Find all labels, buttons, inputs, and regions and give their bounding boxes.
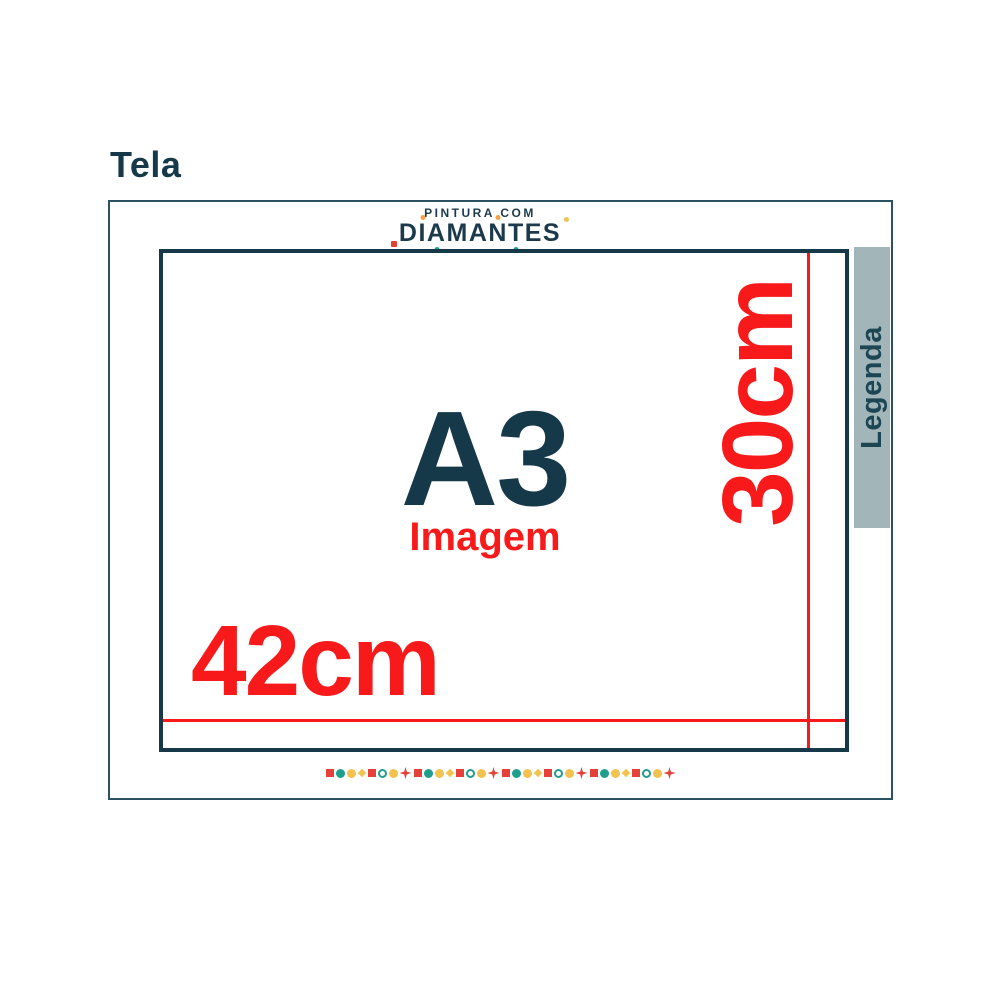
brand-letter: M bbox=[446, 219, 468, 248]
circle-teal-icon bbox=[424, 769, 433, 778]
square-red-icon bbox=[544, 769, 552, 777]
square-red-icon bbox=[502, 769, 510, 777]
circle-yellow-icon bbox=[347, 769, 356, 778]
star-red-icon bbox=[488, 767, 500, 779]
brand-logo: PINTURA COM DIAMANTES bbox=[110, 206, 850, 248]
circle-yellow-icon bbox=[611, 769, 620, 778]
legend-bar: Legenda bbox=[854, 247, 890, 528]
brand-letter: D bbox=[399, 219, 419, 248]
circle-yellow-icon bbox=[565, 769, 574, 778]
ring-teal-icon bbox=[466, 769, 475, 778]
brand-letter: A bbox=[427, 219, 447, 248]
circle-yellow-icon bbox=[477, 769, 486, 778]
ring-teal-icon bbox=[642, 769, 651, 778]
brand-letter: I bbox=[418, 219, 426, 248]
diamond-yellow-icon bbox=[445, 769, 453, 777]
canvas-height-label: 30cm bbox=[708, 279, 808, 527]
red-diamond-dot-icon bbox=[391, 241, 397, 247]
brand-letter: T bbox=[508, 219, 525, 248]
page-title: Tela bbox=[110, 144, 181, 186]
brand-name-top: PINTURA COM bbox=[110, 206, 850, 220]
diamond-shapes-row bbox=[326, 766, 676, 780]
square-red-icon bbox=[326, 769, 334, 777]
legend-label: Legenda bbox=[856, 326, 889, 449]
ring-teal-icon bbox=[554, 769, 563, 778]
circle-teal-icon bbox=[336, 769, 345, 778]
star-red-icon bbox=[400, 767, 412, 779]
star-red-icon bbox=[664, 767, 676, 779]
yellow-diamond-dot-icon bbox=[564, 217, 569, 222]
orange-diamond-dot-icon bbox=[496, 215, 501, 220]
brand-letter: E bbox=[525, 219, 543, 248]
canvas-width-label: 42cm bbox=[191, 611, 439, 711]
circle-teal-icon bbox=[600, 769, 609, 778]
diamond-yellow-icon bbox=[357, 769, 365, 777]
ring-teal-icon bbox=[378, 769, 387, 778]
circle-teal-icon bbox=[512, 769, 521, 778]
orange-diamond-dot-icon bbox=[420, 215, 425, 220]
width-measure-line bbox=[163, 719, 845, 722]
brand-letter: S bbox=[543, 219, 561, 248]
canvas-outline: A3 Imagem 42cm 30cm bbox=[159, 249, 849, 752]
circle-yellow-icon bbox=[653, 769, 662, 778]
square-red-icon bbox=[456, 769, 464, 777]
diamond-yellow-icon bbox=[621, 769, 629, 777]
square-red-icon bbox=[590, 769, 598, 777]
square-red-icon bbox=[632, 769, 640, 777]
product-frame: PINTURA COM DIAMANTES A3 Imagem 42cm 30c… bbox=[108, 200, 893, 800]
brand-letter: A bbox=[469, 219, 489, 248]
brand-letter: N bbox=[488, 219, 508, 248]
square-red-icon bbox=[414, 769, 422, 777]
circle-yellow-icon bbox=[435, 769, 444, 778]
brand-name-main: DIAMANTES bbox=[399, 219, 561, 248]
diamond-yellow-icon bbox=[533, 769, 541, 777]
square-red-icon bbox=[368, 769, 376, 777]
circle-yellow-icon bbox=[389, 769, 398, 778]
star-red-icon bbox=[576, 767, 588, 779]
circle-yellow-icon bbox=[523, 769, 532, 778]
